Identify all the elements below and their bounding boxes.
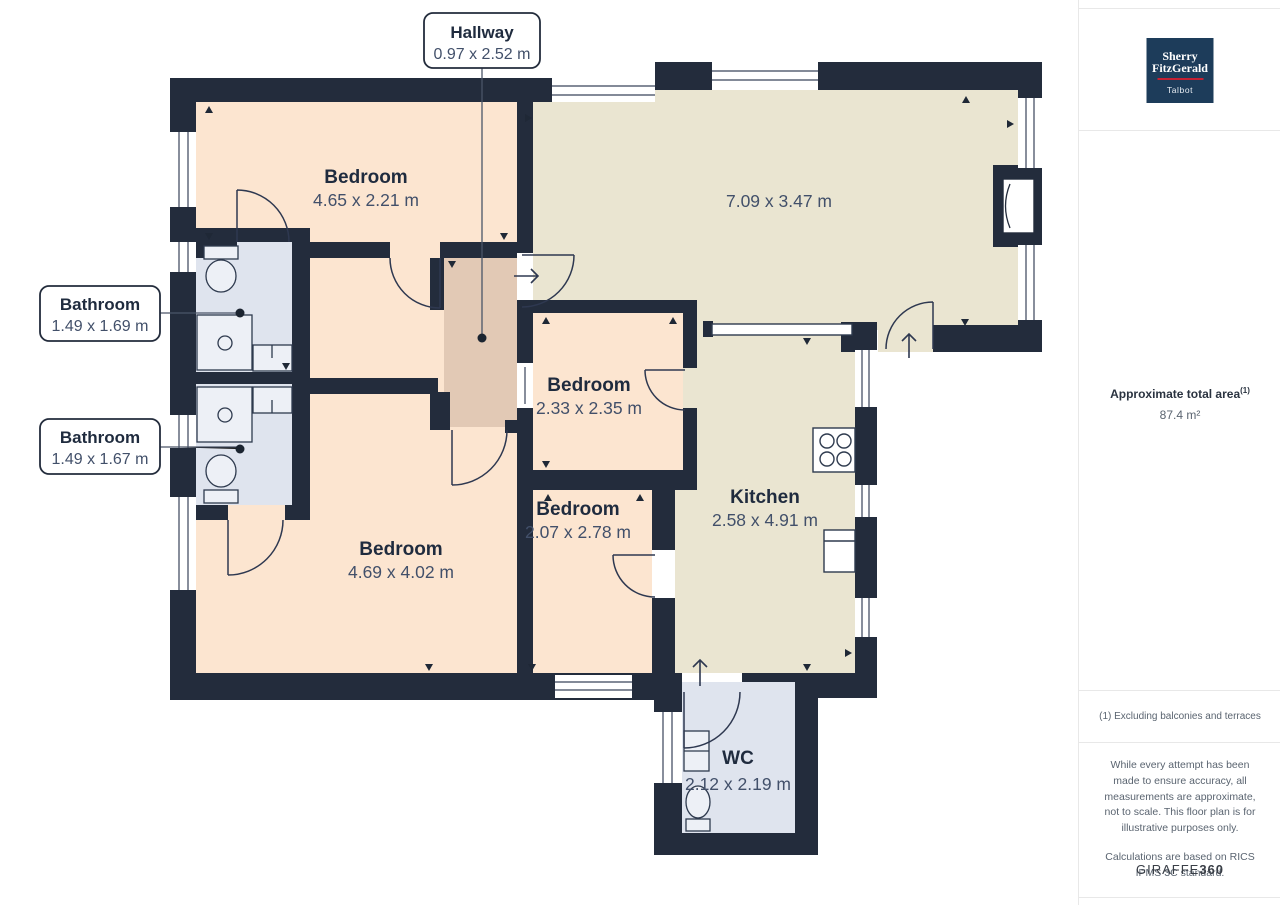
label-bedroom-middle: Bedroom — [547, 375, 630, 396]
window-bottom — [555, 675, 632, 698]
window-left-3 — [170, 415, 196, 448]
callout-bathroom-top-dims: 1.49 x 1.69 m — [52, 318, 149, 335]
hob — [813, 428, 855, 472]
toilet-tank — [686, 819, 710, 831]
logo-office: Talbot — [1147, 85, 1214, 95]
logo-line2: FitzGerald — [1147, 62, 1214, 74]
total-area-value: 87.4 m² — [1079, 408, 1280, 422]
label-bedroom-top: Bedroom — [324, 167, 407, 188]
footnote-marker: (1) — [1240, 386, 1250, 395]
kitchen-counter — [712, 324, 852, 335]
callout-bathroom-top: Bathroom 1.49 x 1.69 m — [40, 286, 160, 341]
dims-kitchen: 2.58 x 4.91 m — [712, 510, 818, 530]
window-left-4 — [170, 497, 196, 590]
agency-logo: Sherry FitzGerald Talbot — [1147, 38, 1214, 103]
toilet-tank — [204, 490, 238, 503]
toilet-icon — [206, 260, 236, 292]
label-bedroom-small: Bedroom — [536, 499, 619, 520]
divider — [1079, 690, 1280, 691]
divider — [1079, 897, 1280, 898]
dims-living: 7.09 x 3.47 m — [726, 191, 832, 211]
living-floor — [533, 101, 655, 330]
dims-bedroom-middle: 2.33 x 2.35 m — [536, 398, 642, 418]
window-left-2 — [170, 242, 196, 272]
window-kitchen-3 — [855, 598, 877, 637]
divider — [1079, 130, 1280, 131]
window-kitchen-2 — [855, 485, 877, 517]
area-footnote: (1) Excluding balconies and terraces — [1079, 711, 1280, 722]
window-kitchen-1 — [855, 350, 877, 407]
label-kitchen: Kitchen — [730, 487, 800, 508]
dims-wc: 2.12 x 2.19 m — [685, 774, 791, 794]
logo-rule — [1157, 78, 1203, 80]
total-area-block: Approximate total area(1) 87.4 m² — [1079, 386, 1280, 422]
hallway-floor — [444, 258, 517, 427]
dims-bedroom-small: 2.07 x 2.78 m — [525, 522, 631, 542]
window-top-2 — [712, 62, 818, 90]
total-area-label: Approximate total area(1) — [1079, 386, 1280, 401]
dims-bedroom-top: 4.65 x 2.21 m — [313, 190, 419, 210]
window-right-2 — [1018, 245, 1042, 320]
window-top-1 — [552, 78, 655, 102]
oven — [824, 530, 855, 572]
callout-bathroom-top-name: Bathroom — [60, 295, 140, 314]
callout-hallway-name: Hallway — [450, 23, 514, 42]
toilet-tank — [204, 246, 238, 259]
info-sidebar: Sherry FitzGerald Talbot Approximate tot… — [1078, 0, 1280, 905]
dims-bedroom-large: 4.69 x 4.02 m — [348, 562, 454, 582]
toilet-icon — [206, 455, 236, 487]
window-right-1 — [1018, 98, 1042, 168]
shower-icon — [197, 387, 252, 442]
window-left-1 — [170, 132, 196, 207]
floorplan-page: Hallway 0.97 x 2.52 m Bathroom 1.49 x 1.… — [0, 0, 1280, 905]
label-bedroom-large: Bedroom — [359, 539, 442, 560]
shower-icon — [197, 315, 252, 370]
divider — [1079, 8, 1280, 9]
label-wc: WC — [722, 748, 754, 769]
callout-hallway: Hallway 0.97 x 2.52 m — [424, 13, 540, 68]
callout-bathroom-bottom-dims: 1.49 x 1.67 m — [52, 451, 149, 468]
window-wc — [654, 712, 682, 783]
callout-hallway-dims: 0.97 x 2.52 m — [434, 46, 531, 63]
divider — [1079, 742, 1280, 743]
disclaimer-accuracy: While every attempt has been made to ens… — [1100, 758, 1260, 837]
callout-bathroom-bottom-name: Bathroom — [60, 428, 140, 447]
callout-bathroom-bottom: Bathroom 1.49 x 1.67 m — [40, 419, 160, 474]
fireplace — [1003, 179, 1034, 233]
giraffe360-brand: GIRAFFE360 — [1079, 862, 1280, 877]
